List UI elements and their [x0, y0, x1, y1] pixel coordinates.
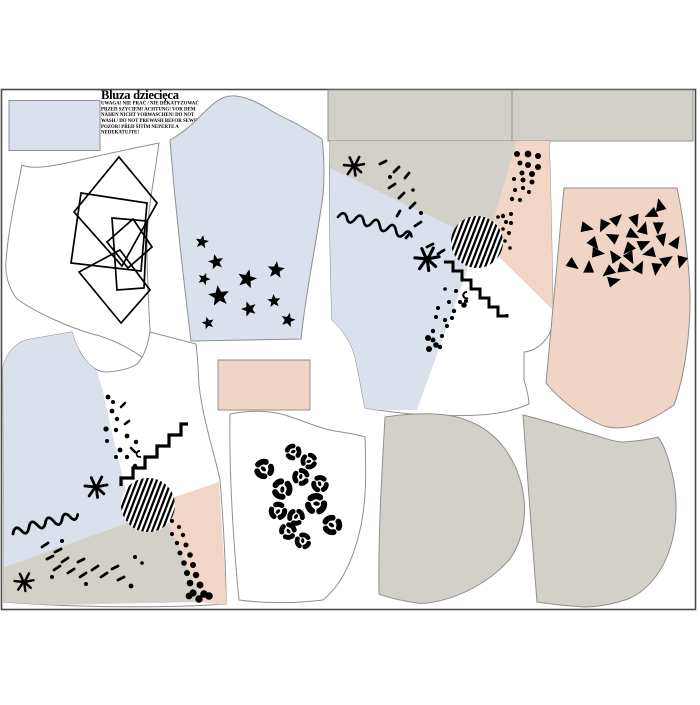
svg-text:POZOR! PŘED ŠITÍM NEPERTE A: POZOR! PŘED ŠITÍM NEPERTE A: [101, 124, 179, 130]
svg-text:NEDEKATUJTE!: NEDEKATUJTE!: [101, 131, 139, 136]
svg-text:WASH / DO NOT PREWASH BEFOR SE: WASH / DO NOT PREWASH BEFOR SEWING!: [101, 119, 205, 124]
svg-text:PRZED SZYCIEM! ACHTUNG! VOR DE: PRZED SZYCIEM! ACHTUNG! VOR DEM: [101, 107, 196, 112]
svg-text:UWAGA! NIE PRAĆ / NIE DEKATYZO: UWAGA! NIE PRAĆ / NIE DEKATYZOWAĆ: [101, 101, 199, 107]
svg-text:NÄHEN NICHT VORWASCHEN! DO NOT: NÄHEN NICHT VORWASCHEN! DO NOT: [101, 112, 195, 118]
svg-text:Bluza dziecięca: Bluza dziecięca: [101, 88, 180, 102]
